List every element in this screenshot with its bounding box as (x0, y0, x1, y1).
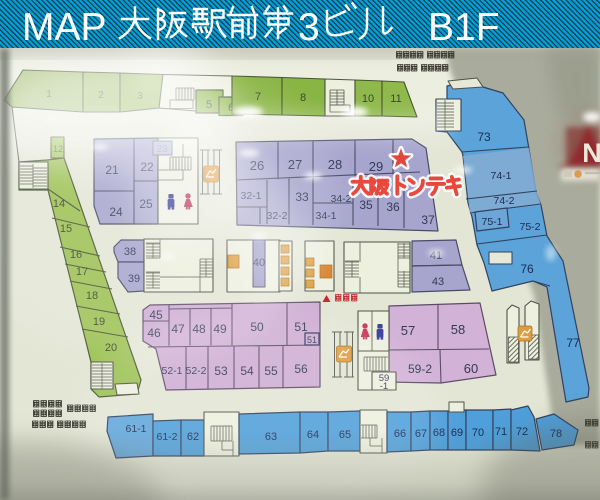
svg-text:11: 11 (390, 93, 401, 105)
svg-text:35: 35 (359, 198, 373, 212)
svg-text:8: 8 (300, 92, 306, 104)
svg-text:3: 3 (298, 6, 320, 49)
svg-text:58: 58 (451, 322, 465, 337)
svg-text:74-2: 74-2 (493, 195, 514, 207)
svg-text:29: 29 (369, 159, 383, 174)
svg-text:73: 73 (477, 130, 491, 144)
svg-text:57: 57 (401, 323, 415, 338)
svg-text:MAP: MAP (22, 6, 107, 49)
svg-text:76: 76 (520, 262, 534, 276)
svg-text:43: 43 (432, 276, 444, 288)
svg-text:60: 60 (464, 361, 478, 376)
svg-text:75-2: 75-2 (519, 221, 540, 233)
svg-text:77: 77 (566, 336, 580, 350)
svg-text:B1F: B1F (428, 6, 500, 49)
svg-text:75-1: 75-1 (481, 216, 502, 228)
svg-text:37: 37 (421, 213, 435, 227)
svg-text:36: 36 (386, 200, 400, 214)
svg-text:74-1: 74-1 (490, 170, 511, 182)
svg-text:N: N (582, 138, 600, 168)
svg-text:10: 10 (362, 93, 374, 105)
